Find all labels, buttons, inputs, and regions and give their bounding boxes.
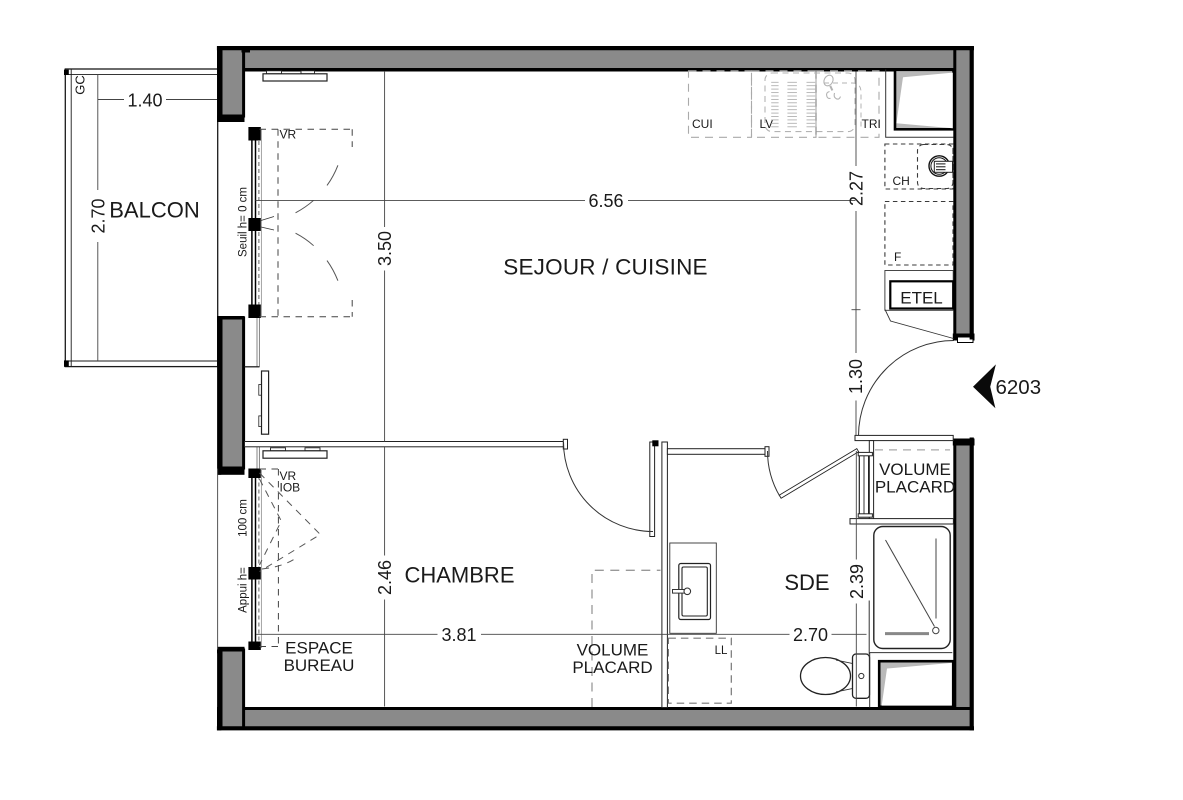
svg-text:Seuil h= 0 cm: Seuil h= 0 cm bbox=[237, 187, 249, 257]
svg-text:BALCON: BALCON bbox=[109, 198, 199, 223]
svg-text:1.30: 1.30 bbox=[846, 359, 866, 394]
svg-text:3.81: 3.81 bbox=[441, 625, 476, 645]
svg-text:ESPACE: ESPACE bbox=[285, 639, 353, 658]
svg-text:SDE: SDE bbox=[784, 570, 829, 595]
svg-text:100 cm: 100 cm bbox=[237, 499, 249, 537]
svg-text:2.46: 2.46 bbox=[375, 560, 395, 595]
svg-text:SEJOUR / CUISINE: SEJOUR / CUISINE bbox=[503, 255, 707, 280]
svg-text:2.39: 2.39 bbox=[847, 564, 867, 599]
svg-text:IOB: IOB bbox=[280, 481, 301, 495]
svg-text:LL: LL bbox=[715, 645, 728, 657]
svg-text:PLACARD: PLACARD bbox=[875, 478, 955, 497]
svg-text:CHAMBRE: CHAMBRE bbox=[404, 563, 514, 588]
svg-text:GC: GC bbox=[73, 75, 88, 95]
svg-text:6.56: 6.56 bbox=[588, 191, 623, 211]
svg-text:VOLUME: VOLUME bbox=[577, 641, 649, 660]
svg-text:3.50: 3.50 bbox=[375, 231, 395, 266]
svg-text:1.40: 1.40 bbox=[127, 90, 162, 110]
svg-text:VOLUME: VOLUME bbox=[879, 460, 951, 479]
svg-text:CH: CH bbox=[893, 174, 910, 188]
svg-text:2.70: 2.70 bbox=[88, 198, 108, 233]
svg-text:6203: 6203 bbox=[996, 376, 1042, 399]
svg-text:2.70: 2.70 bbox=[793, 625, 828, 645]
svg-text:Appui h=: Appui h= bbox=[237, 567, 249, 613]
svg-text:BUREAU: BUREAU bbox=[284, 656, 355, 675]
svg-text:PLACARD: PLACARD bbox=[572, 658, 652, 677]
svg-text:2.27: 2.27 bbox=[847, 171, 867, 206]
svg-text:ETEL: ETEL bbox=[900, 289, 943, 308]
svg-text:F: F bbox=[894, 250, 901, 264]
svg-text:TRI: TRI bbox=[862, 117, 881, 131]
svg-text:CUI: CUI bbox=[692, 117, 713, 131]
svg-text:VR: VR bbox=[280, 128, 297, 142]
